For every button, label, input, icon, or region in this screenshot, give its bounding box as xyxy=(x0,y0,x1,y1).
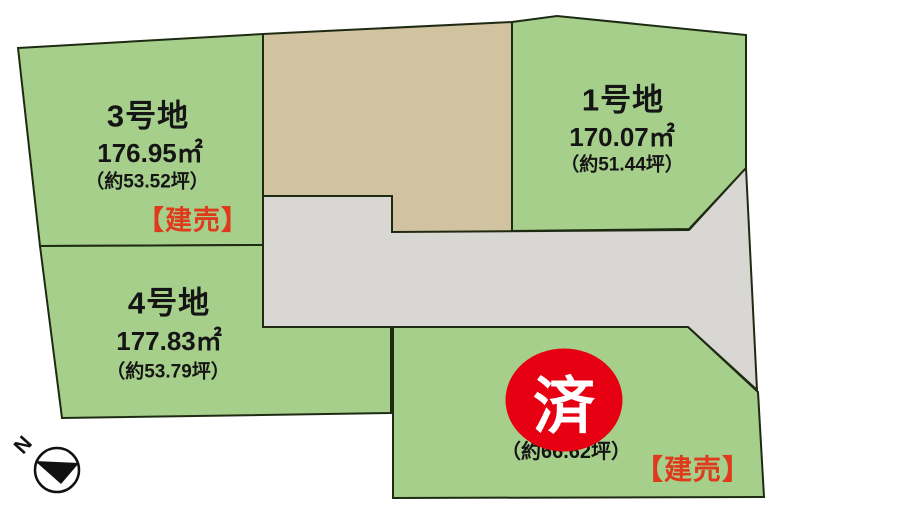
plot-3-sale-label: 【建売】 xyxy=(137,208,249,235)
plot-3-name: 3号地 xyxy=(107,101,189,132)
plot-2-sale-label: 【建売】 xyxy=(635,456,751,484)
plot-3-area-tsubo: （約53.52坪） xyxy=(85,173,209,192)
compass-north-label: N xyxy=(10,432,37,459)
plot-1-name: 1号地 xyxy=(582,85,664,116)
plot-3-area-m2: 176.95㎡ xyxy=(97,140,203,166)
lot-map-svg: N xyxy=(0,0,900,510)
plot-1-area-tsubo: （約51.44坪） xyxy=(560,156,684,175)
plot-1-area-m2: 170.07㎡ xyxy=(569,124,675,150)
plot-4-name: 4号地 xyxy=(128,288,210,319)
plot-4-area-tsubo: （約53.79坪） xyxy=(106,363,230,382)
sold-badge: 済 xyxy=(506,349,623,452)
lot-map: N 3号地 176.95㎡ （約53.52坪） 【建売】 1号地 170.07㎡… xyxy=(0,0,900,510)
plot-4-area-m2: 177.83㎡ xyxy=(116,328,222,354)
compass: N xyxy=(10,432,79,492)
